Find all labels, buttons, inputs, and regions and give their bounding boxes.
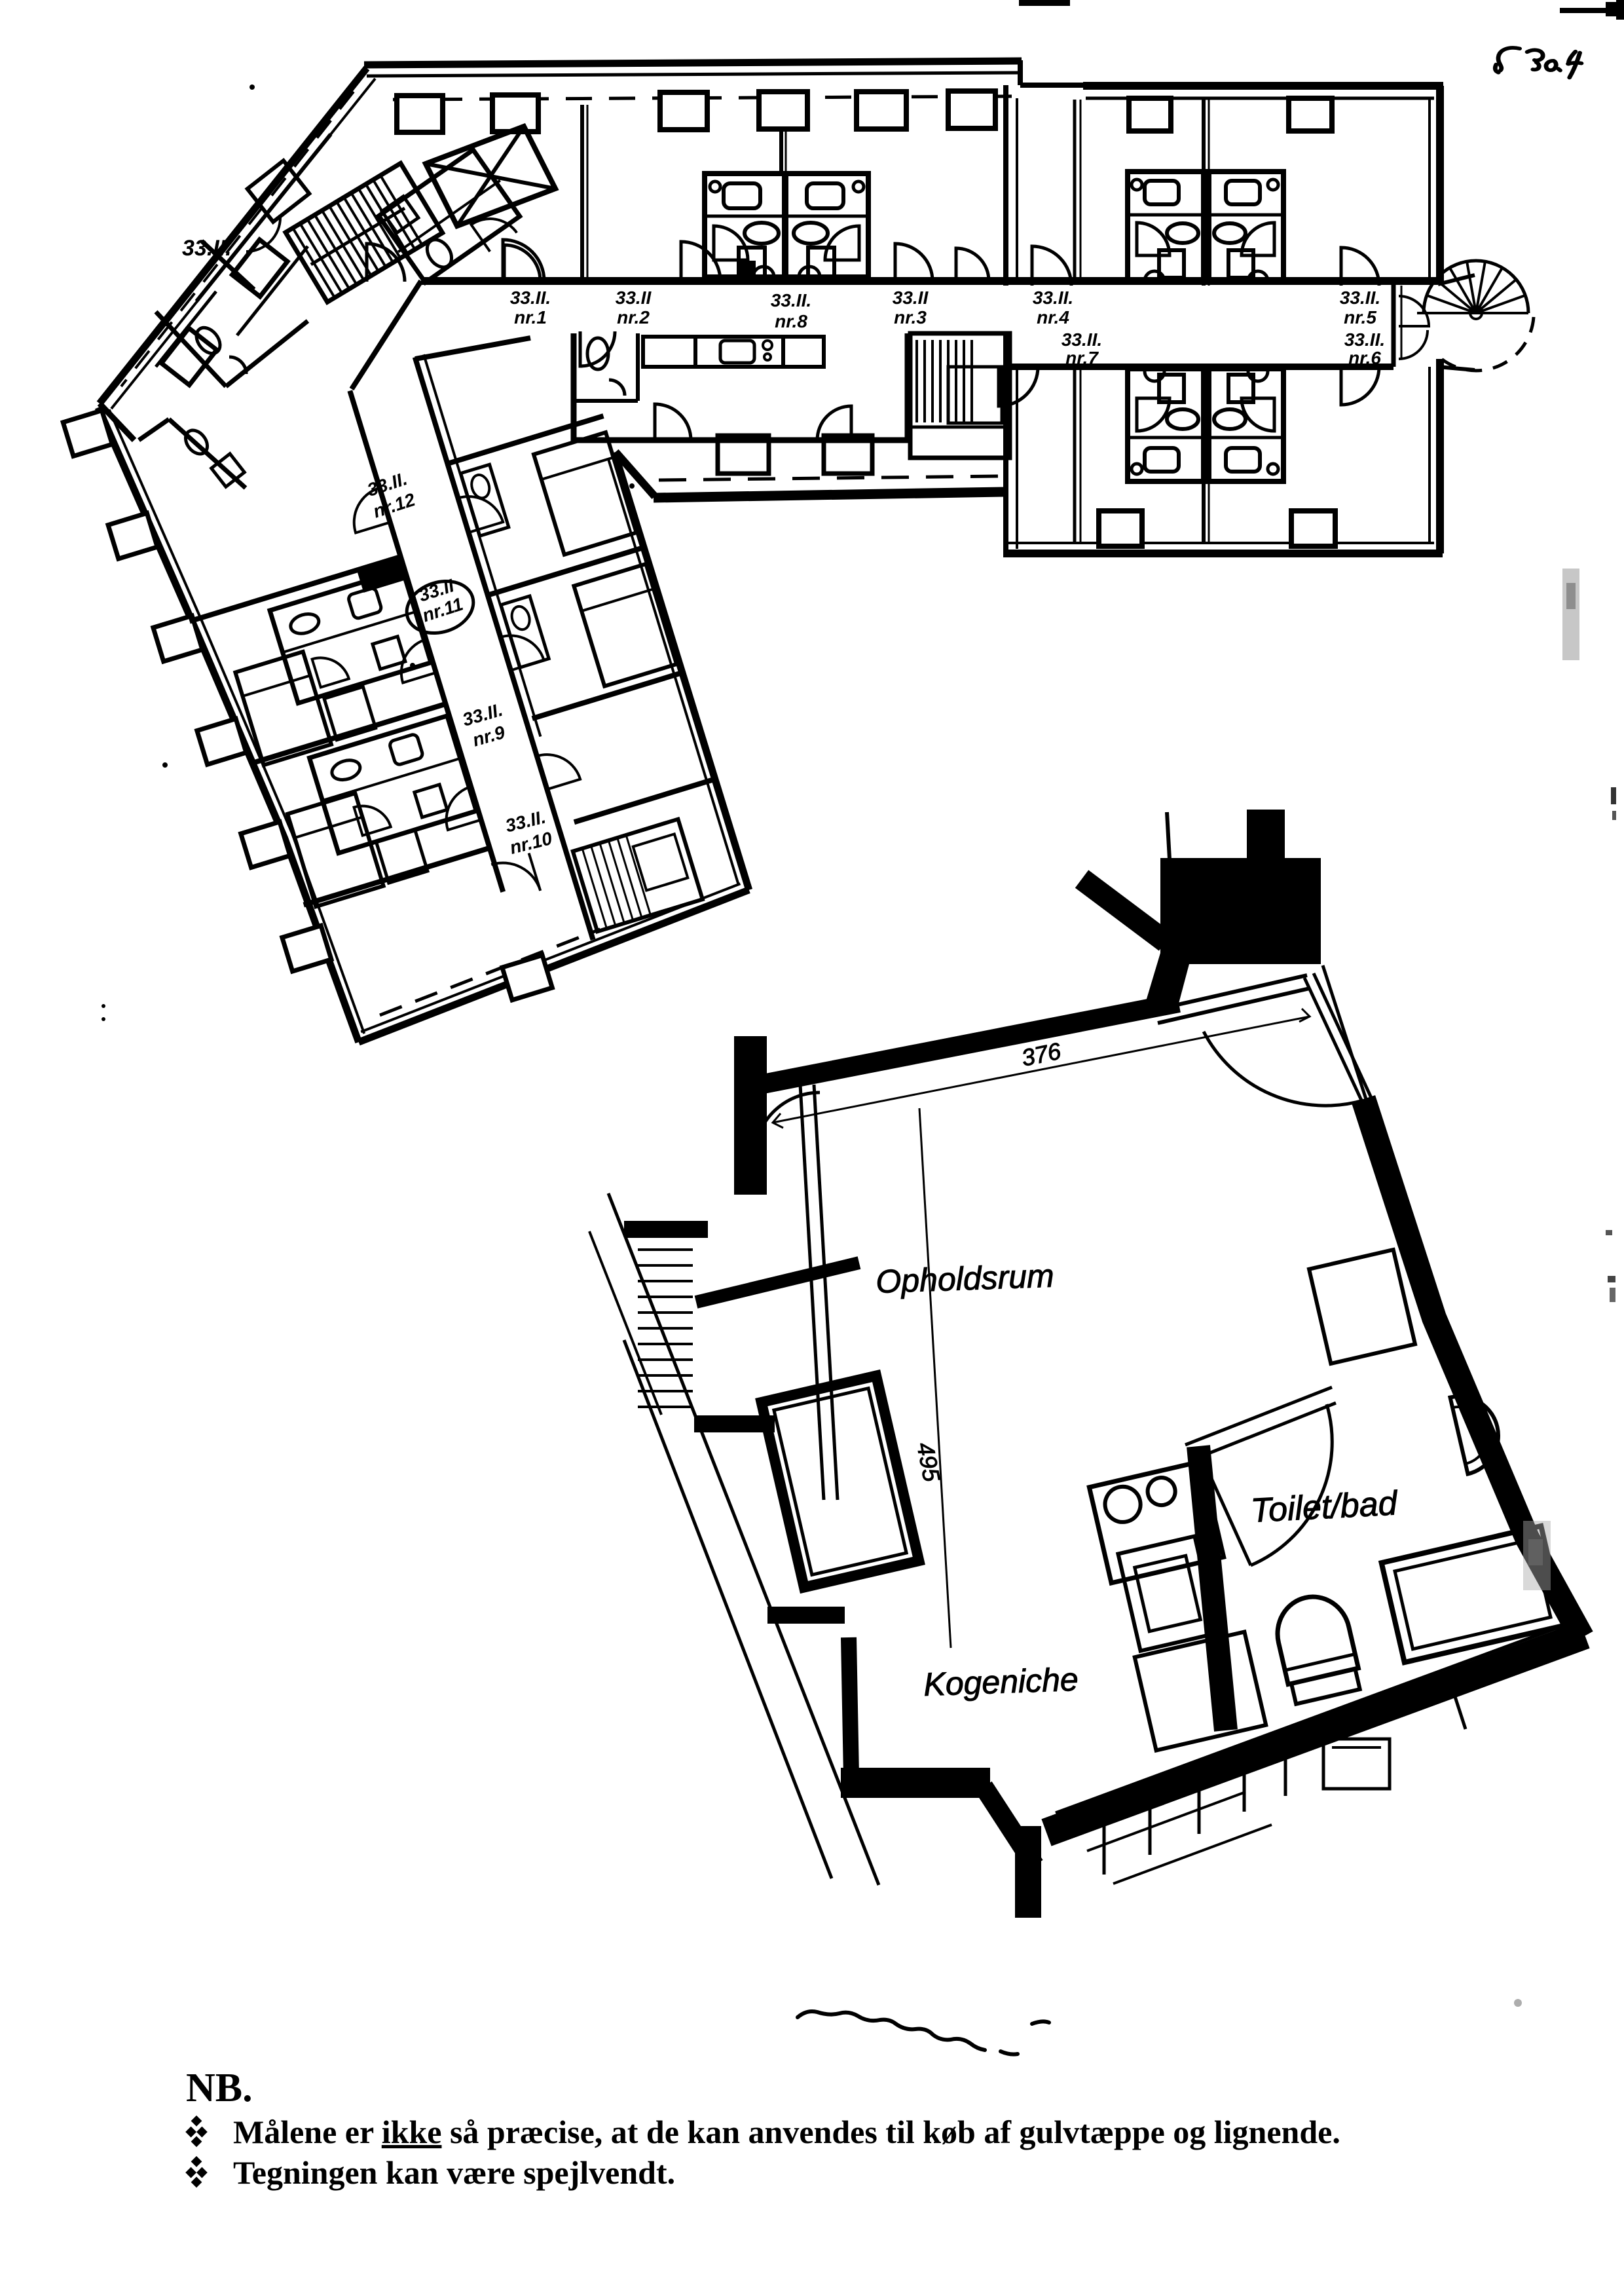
svg-text:Målene er ikke så præcise, at: Målene er ikke så præcise, at de kan anv… (233, 2114, 1340, 2150)
svg-text:nr.1: nr.1 (514, 307, 547, 327)
svg-text:Tegningen kan være spejlvendt.: Tegningen kan være spejlvendt. (233, 2154, 675, 2191)
svg-text:Toilet/bad: Toilet/bad (1250, 1484, 1399, 1530)
svg-text:33.II.: 33.II. (771, 290, 811, 310)
svg-text:Kogeniche: Kogeniche (923, 1661, 1079, 1703)
svg-text:33.II.: 33.II. (1344, 329, 1385, 350)
svg-text:33.II.: 33.II. (1340, 288, 1380, 308)
svg-text:nr.4: nr.4 (1037, 307, 1069, 327)
svg-text:nr.2: nr.2 (617, 307, 650, 327)
svg-text:Opholdsrum: Opholdsrum (875, 1258, 1054, 1300)
svg-text:nr.6: nr.6 (1348, 348, 1381, 368)
svg-text:nr.5: nr.5 (1344, 307, 1376, 327)
svg-text:NB.: NB. (186, 2066, 253, 2110)
svg-text:nr.8: nr.8 (775, 311, 807, 331)
svg-text:33.II.: 33.II. (182, 236, 232, 261)
svg-text:33.II.: 33.II. (1061, 329, 1102, 350)
svg-text:33.II: 33.II (616, 288, 652, 308)
svg-text:33.II.: 33.II. (1033, 288, 1073, 308)
svg-text:33.II: 33.II (893, 288, 929, 308)
svg-text:nr.7: nr.7 (1065, 348, 1099, 368)
svg-text:nr.3: nr.3 (894, 307, 927, 327)
svg-text:33.II.: 33.II. (510, 288, 551, 308)
